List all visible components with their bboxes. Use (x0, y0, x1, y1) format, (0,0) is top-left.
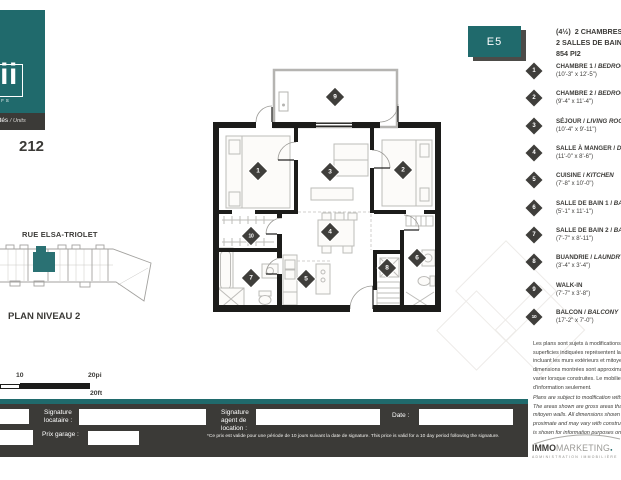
kitchen-island (316, 264, 330, 294)
unit-area: 854 PI2 (556, 49, 581, 58)
legend-room-dims: (11'-0" x 8'-6") (556, 153, 621, 161)
street-label: RUE ELSA-TRIOLET (22, 230, 98, 239)
disclaimer-fr: Les plans sont sujets à modifications sa… (533, 340, 621, 392)
footer-logo: IMMOMARKETING● (532, 443, 612, 453)
level-caption: PLAN NIVEAU 2 (8, 311, 80, 322)
room-number-icon: 8 (526, 254, 543, 271)
parking-price-field[interactable] (0, 430, 33, 445)
legend-room-name: BALCON / BALCONY (556, 309, 618, 317)
room-number-icon: 5 (526, 172, 543, 189)
brand-tagline: LOCATIFS (0, 98, 11, 103)
tenant-signature-label: Signaturelocataire : (44, 409, 72, 425)
garage-price-label: Prix garage : (42, 431, 79, 439)
legend-item: 3SÉJOUR / LIVING ROOM(10'-4" x 9'-11") (528, 118, 621, 145)
room-number-icon: 3 (526, 117, 543, 134)
units-bar: Unités / Units (0, 113, 45, 130)
legend-item: 5CUISINE / KITCHEN(7'-8" x 10'-0") (528, 172, 621, 199)
legend-item: 1CHAMBRE 1 / BEDROOM 1(10'-3" x 12'-5") (528, 63, 621, 90)
toilet-2 (259, 296, 271, 305)
signature-bar: Signaturelocataire : Prix garage : Signa… (0, 404, 528, 457)
room-number-icon: 7 (526, 227, 543, 244)
dining-table (318, 220, 354, 246)
legend-room-name: CUISINE / KITCHEN (556, 172, 614, 180)
legend-room-name: SALLE DE BAIN 1 / BATHROOM 1 (556, 200, 621, 208)
footer-logo-subtitle: ADMINISTRATION IMMOBILIÈRE (532, 455, 618, 459)
key-plan (0, 243, 156, 305)
legend-room-name: BUANDRIE / LAUNDRY (556, 254, 621, 262)
legend-item: 2CHAMBRE 2 / BEDROOM 2(9'-4" x 11'-4") (528, 90, 621, 117)
agent-signature-label: Signatureagent delocation : (221, 409, 249, 433)
disclaimer-en: Plans are subject to modification withou… (533, 394, 621, 438)
vanity-2 (262, 264, 278, 278)
unit-layout-line: (4½) 2 CHAMBRES/BEDROOMS (556, 27, 621, 36)
legend-room-dims: (10'-4" x 9'-11") (556, 126, 621, 134)
legend-item: 10BALCON / BALCONY(17'-2" x 7'-0") (528, 309, 621, 336)
toilet-1 (418, 277, 430, 286)
key-plan-unit-balcony (36, 246, 46, 252)
floor-plan (210, 62, 445, 314)
legend-room-dims: (10'-3" x 12'-5") (556, 71, 621, 79)
unit-badge: E5 (468, 26, 521, 57)
floorplan-sheet: mii LOCATIFS Unités / Units 212 E5 (4½) … (0, 0, 621, 480)
date-field[interactable] (419, 409, 513, 425)
scale-right-label-ft: 20ft (90, 390, 102, 397)
key-plan-highlighted-unit (33, 252, 55, 272)
balcony-outline (274, 70, 397, 127)
scale-right-label-pi: 20pi (88, 372, 102, 379)
legend-item: 6SALLE DE BAIN 1 / BATHROOM 1(5'-1" x 11… (528, 200, 621, 227)
legend-room-name: SALLE DE BAIN 2 / BATHROOM 2 (556, 227, 621, 235)
room-number-icon: 10 (526, 309, 543, 326)
legend-item: 4SALLE À MANGER / DINING ROOM(11'-0" x 8… (528, 145, 621, 172)
garage-price-field[interactable] (88, 431, 139, 445)
fine-print: *Ce prix est valide pour une période de … (207, 434, 499, 439)
tv-bench (311, 188, 353, 200)
room-number-icon: 1 (526, 63, 543, 80)
room-number-icon: 2 (526, 90, 543, 107)
legend-room-dims: (7'-7" x 3'-8") (556, 290, 590, 298)
fridge (283, 292, 297, 305)
units-label-fr: Unités (0, 117, 8, 124)
room-number-icon: 9 (526, 281, 543, 298)
legend-list: 1CHAMBRE 1 / BEDROOM 1(10'-3" x 12'-5")2… (528, 63, 621, 343)
legend-room-name: CHAMBRE 1 / BEDROOM 1 (556, 63, 621, 71)
rent-price-field[interactable] (0, 409, 29, 424)
legend-room-dims: (7'-8" x 10'-0") (556, 180, 614, 188)
room-number-icon: 4 (526, 145, 543, 162)
scale-mid-label: 10 (16, 372, 24, 379)
legend-room-dims: (7'-7" x 8'-11") (556, 235, 621, 243)
unit-baths-line: 2 SALLES DE BAIN/BATHROOMS (556, 38, 621, 47)
legend-item: 7SALLE DE BAIN 2 / BATHROOM 2(7'-7" x 8'… (528, 227, 621, 254)
scale-bar-black-segment (20, 383, 90, 389)
date-label: Date : (392, 412, 409, 420)
legend-room-name: SÉJOUR / LIVING ROOM (556, 118, 621, 126)
legend-room-dims: (5'-1" x 11'-1") (556, 208, 621, 216)
legend-room-name: SALLE À MANGER / DINING ROOM (556, 145, 621, 153)
units-label-en: / Units (10, 118, 26, 124)
room-number-icon: 6 (526, 199, 543, 216)
legend-room-dims: (17'-2" x 7'-0") (556, 317, 618, 325)
legend-room-dims: (9'-4" x 11'-4") (556, 98, 621, 106)
legend-item: 9WALK-IN(7'-7" x 3'-8") (528, 282, 621, 309)
legend-room-dims: (3'-4" x 3'-4") (556, 262, 621, 270)
agent-signature-field[interactable] (256, 409, 380, 425)
closet-shelf (406, 216, 433, 226)
legend-room-name: WALK-IN (556, 282, 590, 290)
brand-name: mii (0, 58, 18, 92)
scale-bar-white-segment (0, 384, 20, 389)
brand-logo: mii LOCATIFS (0, 10, 45, 113)
tenant-signature-field[interactable] (79, 409, 206, 425)
unit-number: 212 (19, 138, 44, 155)
legend-room-name: CHAMBRE 2 / BEDROOM 2 (556, 90, 621, 98)
legend-item: 8BUANDRIE / LAUNDRY(3'-4" x 3'-4") (528, 254, 621, 281)
